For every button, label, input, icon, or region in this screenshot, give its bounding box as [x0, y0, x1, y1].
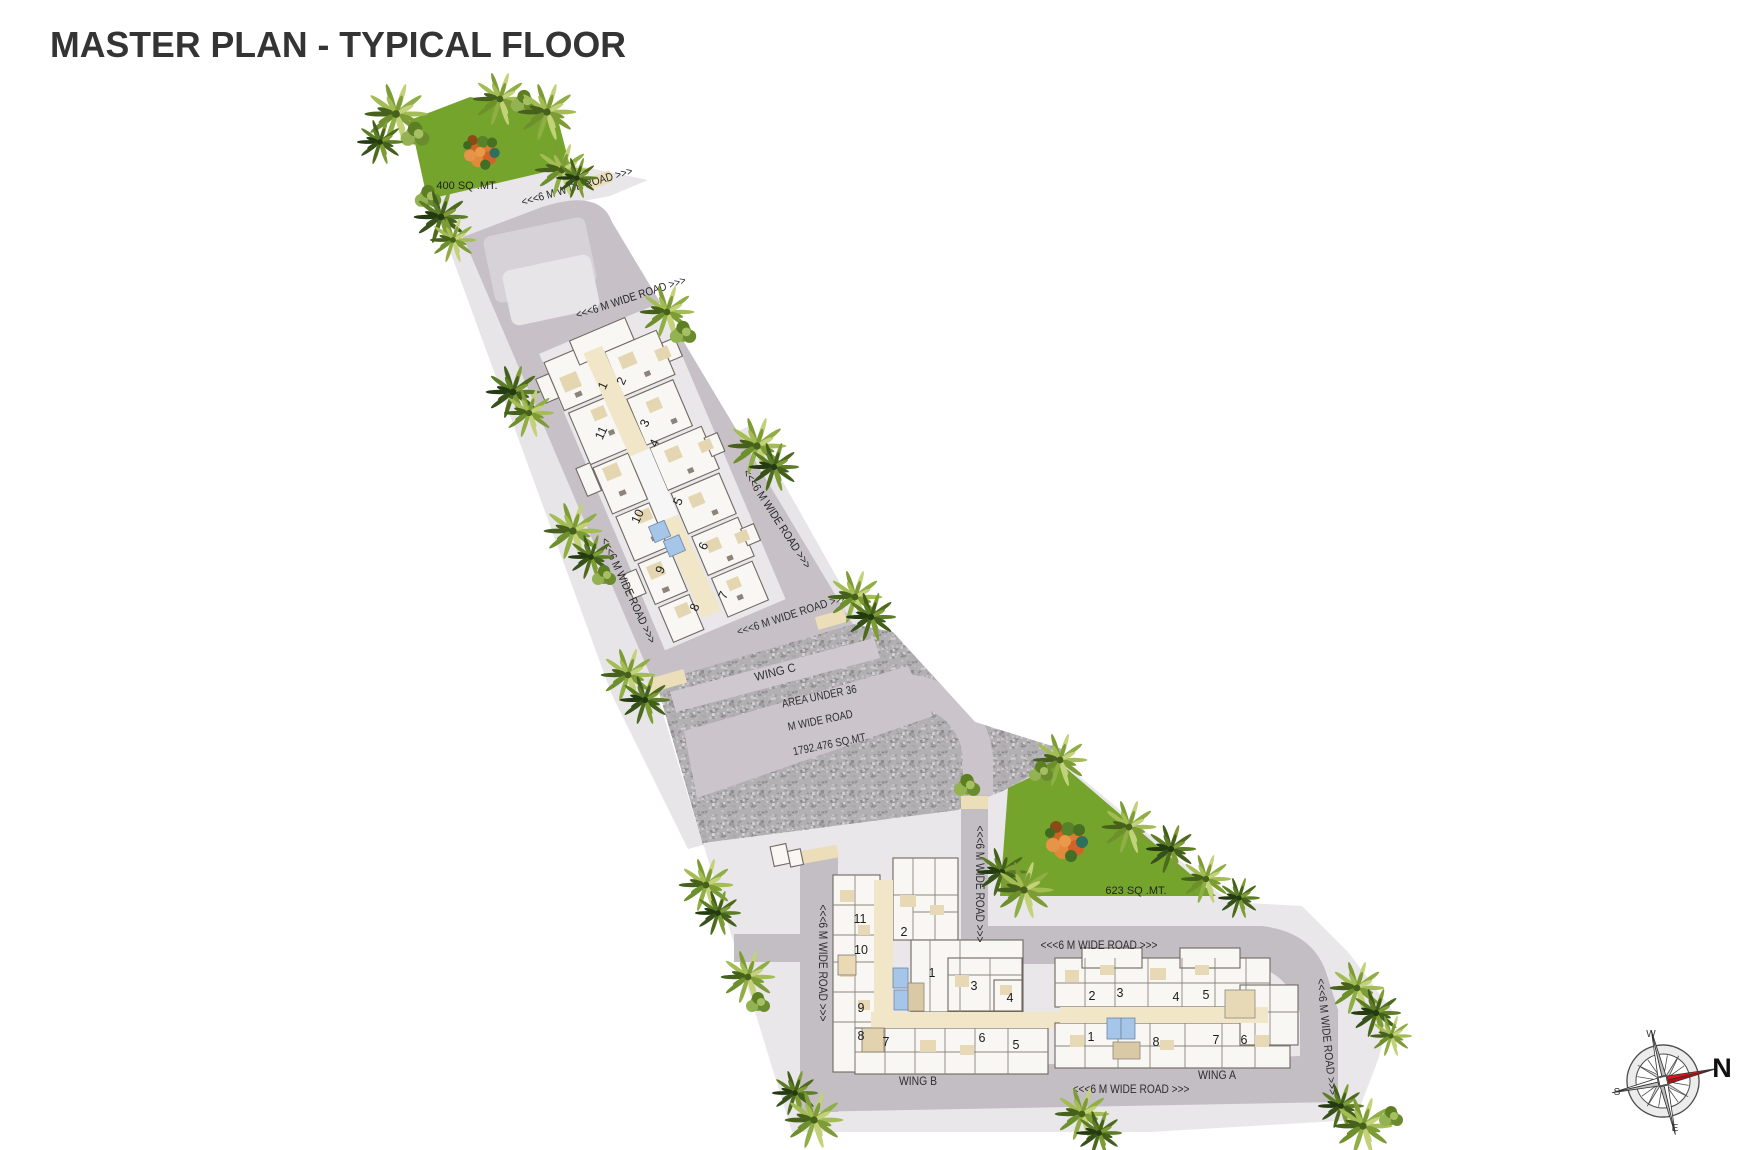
svg-text:1: 1	[1088, 1030, 1095, 1044]
svg-text:4: 4	[1007, 991, 1014, 1005]
svg-text:10: 10	[854, 943, 868, 957]
svg-text:<<<6 M WIDE ROAD >>>: <<<6 M WIDE ROAD >>>	[816, 905, 828, 1022]
svg-text:2: 2	[1089, 989, 1096, 1003]
svg-text:400 SQ .MT.: 400 SQ .MT.	[436, 180, 497, 192]
svg-text:3: 3	[1117, 986, 1124, 1000]
svg-text:623 SQ .MT.: 623 SQ .MT.	[1105, 885, 1166, 897]
svg-text:N: N	[1712, 1053, 1732, 1083]
svg-text:4: 4	[1173, 990, 1180, 1004]
svg-text:6: 6	[1241, 1033, 1248, 1047]
svg-text:3: 3	[971, 979, 978, 993]
svg-text:W: W	[1646, 1029, 1656, 1040]
svg-text:8: 8	[858, 1029, 865, 1043]
svg-text:S: S	[1614, 1087, 1621, 1098]
svg-text:8: 8	[1153, 1035, 1160, 1049]
svg-text:E: E	[1672, 1123, 1679, 1134]
svg-text:WING A: WING A	[1198, 1068, 1236, 1082]
svg-text:5: 5	[1013, 1038, 1020, 1052]
svg-text:7: 7	[1213, 1033, 1220, 1047]
svg-text:9: 9	[858, 1001, 865, 1015]
svg-text:<<<6 M WIDE ROAD >>>: <<<6 M WIDE ROAD >>>	[1041, 938, 1158, 952]
svg-text:7: 7	[883, 1035, 890, 1049]
svg-text:11: 11	[854, 912, 867, 926]
svg-text:WING B: WING B	[899, 1074, 937, 1088]
svg-text:2: 2	[901, 925, 908, 939]
svg-text:1: 1	[929, 966, 936, 980]
svg-text:5: 5	[1203, 988, 1210, 1002]
svg-text:6: 6	[979, 1031, 986, 1045]
svg-text:MASTER PLAN - TYPICAL FLOOR: MASTER PLAN - TYPICAL FLOOR	[50, 24, 626, 65]
